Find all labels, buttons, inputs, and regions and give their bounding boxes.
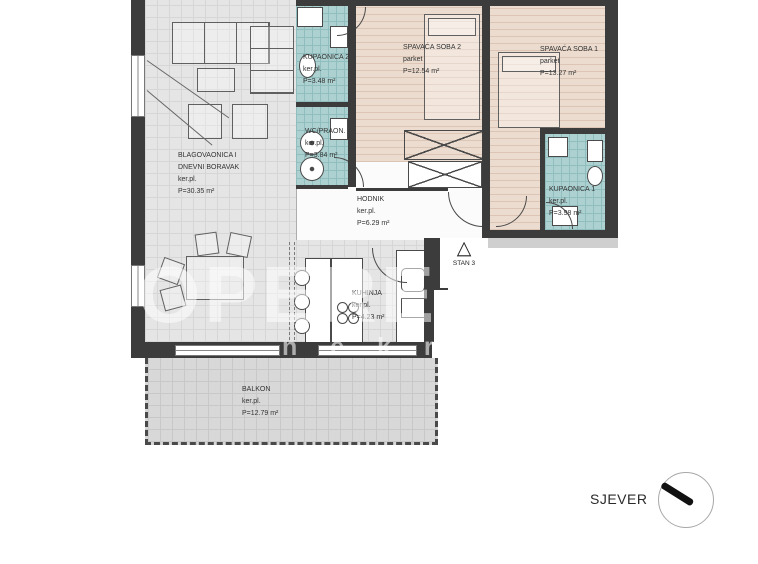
unit-triangle-icon: △ — [440, 238, 488, 260]
floor-plan-canvas: BLAGOVAONICA I DNEVNI BORAVAK ker.pl. P=… — [0, 0, 758, 564]
wall-bottom-right-wing — [482, 230, 618, 238]
balcony-floor — [145, 358, 438, 445]
wall-bathroom1-left — [540, 134, 545, 230]
armchair-2 — [232, 104, 268, 139]
floor-zone-divider — [289, 242, 295, 340]
bar-stool-3 — [294, 318, 310, 334]
bar-stool-2 — [294, 294, 310, 310]
dining-chair-3 — [195, 232, 220, 257]
sofa-side — [250, 26, 294, 94]
room-finish: ker.pl. — [242, 396, 278, 408]
room-finish: parket — [403, 54, 461, 66]
room-area: P=3.84 m² — [305, 150, 345, 162]
room-name: SPAVAĆA SOBA 1 — [540, 44, 598, 56]
room-finish: ker.pl. — [305, 138, 345, 150]
room-finish: ker.pl. — [178, 174, 239, 186]
wall-kitchen-right — [424, 290, 434, 342]
room-label-wc: WC/PRAON. ker.pl. P=3.84 m² — [305, 126, 345, 162]
room-label-kitchen: KUHINJA ker.pl. P=4.23 m² — [352, 288, 385, 324]
room-label-living: BLAGOVAONICA I DNEVNI BORAVAK ker.pl. P=… — [178, 150, 239, 198]
wall-bath-divider — [296, 102, 348, 107]
hall-edge-line — [296, 187, 297, 240]
wall-wc-bottom — [296, 185, 348, 189]
bar-stool-1 — [294, 270, 310, 286]
wall-nook-left — [482, 158, 490, 238]
wall-right — [605, 0, 618, 238]
room-finish: ker.pl. — [352, 300, 385, 312]
room-label-bathroom2: KUPAONICA 2 ker.pl. P=3.48 m² — [303, 52, 349, 88]
wall-bedroom-divider — [482, 0, 490, 158]
room-name-2: DNEVNI BORAVAK — [178, 162, 239, 174]
room-area: P=3.48 m² — [303, 76, 349, 88]
wall-left-upper — [131, 0, 145, 55]
dining-chair-4 — [226, 232, 252, 258]
room-finish: ker.pl. — [549, 196, 595, 208]
room-name: KUPAONICA 1 — [549, 184, 595, 196]
hob-burner-3 — [337, 313, 348, 324]
room-label-bathroom1: KUPAONICA 1 ker.pl. P=3.98 m² — [549, 184, 595, 220]
room-label-bedroom1: SPAVAĆA SOBA 1 parket P=13.27 m² — [540, 44, 598, 80]
window-balcony-1 — [175, 345, 280, 356]
wardrobe-2 — [408, 161, 482, 188]
room-area: P=6.29 m² — [357, 218, 390, 230]
stairwell-strip — [482, 238, 618, 248]
dining-table — [186, 256, 244, 300]
room-label-balcony: BALKON ker.pl. P=12.79 m² — [242, 384, 278, 420]
cabinet-bath1 — [548, 137, 568, 157]
room-finish: ker.pl. — [303, 64, 349, 76]
wall-top — [296, 0, 618, 6]
room-area: P=12.54 m² — [403, 66, 461, 78]
room-finish: ker.pl. — [357, 206, 390, 218]
wall-left-middle — [131, 115, 145, 265]
unit-label: STAN 3 — [440, 260, 488, 268]
wall-bathroom1-top — [540, 128, 605, 134]
window-balcony-2 — [318, 345, 417, 356]
room-finish: parket — [540, 56, 598, 68]
room-name: BLAGOVAONICA I — [178, 150, 239, 162]
room-name: WC/PRAON. — [305, 126, 345, 138]
kitchen-appliance — [401, 298, 425, 318]
wall-hall-top — [356, 188, 448, 191]
pillow-bedroom2 — [428, 18, 476, 36]
room-area: P=12.79 m² — [242, 408, 278, 420]
north-label: SJEVER — [590, 491, 647, 507]
room-area: P=13.27 m² — [540, 68, 598, 80]
wardrobe-1 — [404, 130, 484, 160]
sink-bath1 — [587, 140, 603, 162]
unit-marker: △ STAN 3 — [440, 238, 488, 288]
room-name: BALKON — [242, 384, 278, 396]
toilet-bath1 — [587, 166, 603, 186]
window-left-1 — [131, 55, 145, 117]
room-area: P=30.35 m² — [178, 186, 239, 198]
room-label-hallway: HODNIK ker.pl. P=6.29 m² — [357, 194, 390, 230]
room-label-bedroom2: SPAVAĆA SOBA 2 parket P=12.54 m² — [403, 42, 461, 78]
room-name: HODNIK — [357, 194, 390, 206]
shower-bath2 — [297, 7, 323, 27]
room-name: SPAVAĆA SOBA 2 — [403, 42, 461, 54]
room-area: P=4.23 m² — [352, 312, 385, 324]
window-left-2 — [131, 265, 145, 307]
room-area: P=3.98 m² — [549, 208, 595, 220]
room-name: KUPAONICA 2 — [303, 52, 349, 64]
room-name: KUHINJA — [352, 288, 385, 300]
hob-burner-1 — [337, 302, 348, 313]
wall-bath-column — [348, 0, 356, 187]
coffee-table — [197, 68, 235, 92]
